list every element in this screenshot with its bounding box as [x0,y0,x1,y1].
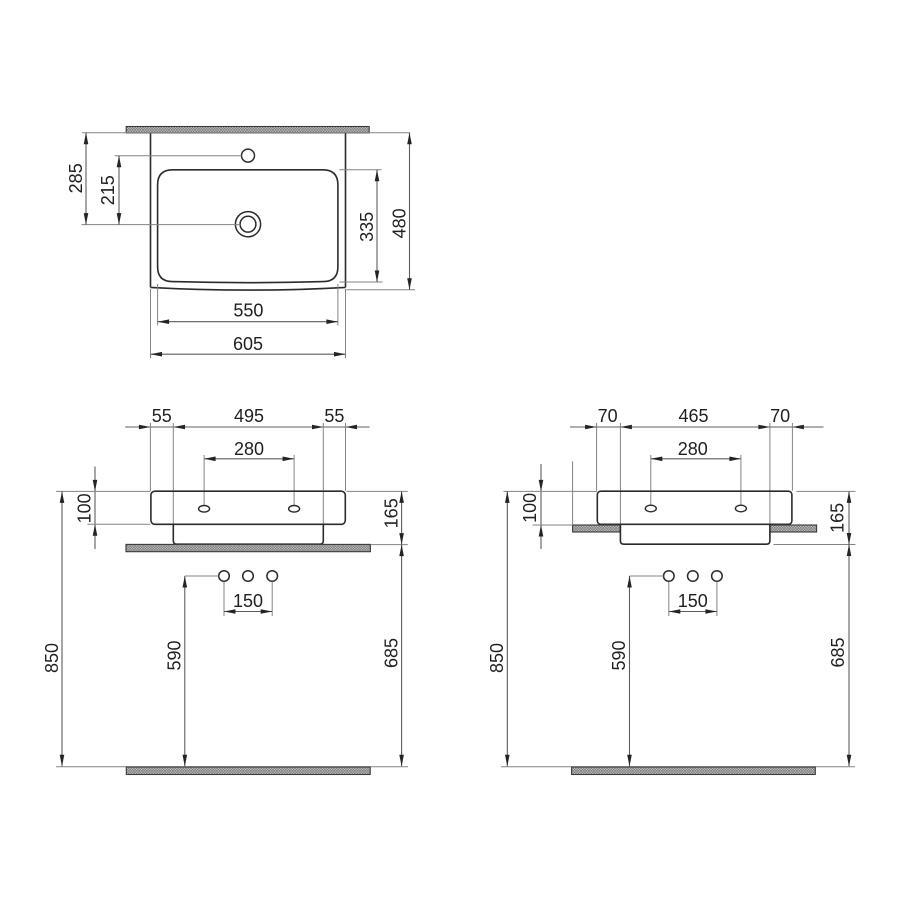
svg-text:480: 480 [389,208,409,238]
svg-text:685: 685 [381,638,401,668]
svg-text:550: 550 [233,301,263,321]
svg-text:850: 850 [487,643,507,673]
svg-text:590: 590 [164,640,184,670]
svg-text:280: 280 [234,439,264,459]
svg-text:100: 100 [74,493,94,523]
svg-text:165: 165 [382,498,402,528]
svg-text:215: 215 [98,175,118,205]
svg-text:590: 590 [609,640,629,670]
svg-text:285: 285 [66,163,86,193]
svg-text:335: 335 [357,212,377,242]
svg-text:55: 55 [152,406,172,426]
svg-text:495: 495 [234,406,264,426]
svg-text:100: 100 [520,493,540,523]
svg-text:70: 70 [598,406,618,426]
svg-text:55: 55 [324,406,344,426]
svg-text:605: 605 [233,334,263,354]
svg-text:280: 280 [678,439,708,459]
svg-text:150: 150 [233,591,263,611]
svg-text:685: 685 [828,637,848,667]
svg-text:150: 150 [678,591,708,611]
svg-text:465: 465 [678,406,708,426]
svg-text:70: 70 [770,406,790,426]
svg-text:850: 850 [42,643,62,673]
svg-text:165: 165 [827,503,847,533]
